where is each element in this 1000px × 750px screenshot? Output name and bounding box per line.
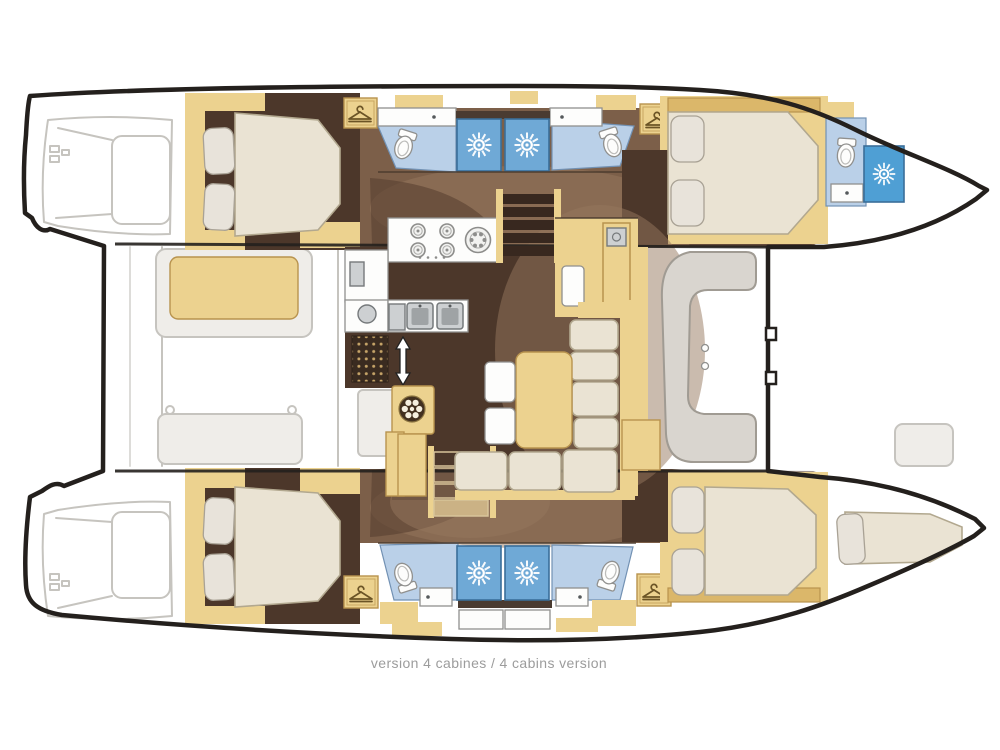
shower-stall	[505, 546, 549, 600]
sofa-cushion	[455, 452, 507, 490]
galley-sink-counter	[388, 300, 468, 332]
shower-stall	[457, 119, 501, 171]
pillow	[672, 487, 704, 533]
sofa-cushion	[509, 452, 561, 490]
floorplan-page: version 4 cabines / 4 cabins version	[0, 0, 1000, 750]
sofa-cushion	[563, 450, 617, 492]
double-bed	[705, 487, 816, 595]
round-burner-icon	[466, 228, 491, 253]
pillow	[671, 180, 704, 226]
crossbeam-cleat	[766, 328, 776, 340]
bow-locker-hatch	[895, 424, 953, 466]
floor-grate	[352, 336, 388, 382]
sofa-cushion	[572, 382, 618, 416]
saloon-table	[516, 352, 572, 448]
nav-sink-icon	[607, 228, 626, 246]
sink-counter	[550, 108, 602, 126]
bow-berth	[836, 512, 962, 565]
pillow	[203, 183, 235, 231]
cockpit-table	[158, 406, 302, 464]
shower-stall	[457, 546, 501, 600]
cabin-aft-port	[185, 93, 360, 250]
burner-icon	[440, 243, 454, 257]
sink-counter	[831, 184, 863, 202]
pouf	[485, 408, 515, 444]
pillow	[203, 497, 235, 545]
pouf	[485, 362, 515, 402]
wheel-icon	[399, 396, 425, 422]
sink-counter	[420, 588, 452, 606]
sofa-cushion	[570, 352, 618, 380]
hanging-locker	[344, 98, 377, 128]
sink-icon	[437, 303, 463, 329]
shower-stall	[505, 119, 549, 171]
galley-fridge-column	[345, 250, 388, 332]
hanging-locker	[344, 576, 378, 608]
caption: version 4 cabines / 4 cabins version	[371, 655, 607, 671]
cabin-aft-starboard	[185, 468, 378, 624]
pillow	[203, 127, 235, 175]
sink-counter	[556, 588, 588, 606]
sink-icon	[407, 303, 433, 329]
nav-seat	[562, 266, 584, 306]
sofa-cushion	[574, 418, 618, 448]
burner-icon	[411, 224, 425, 238]
pillow	[671, 116, 704, 162]
double-bed	[235, 113, 340, 236]
burner-icon	[411, 243, 425, 257]
cabinet	[505, 610, 550, 629]
corner-cabinet	[622, 420, 660, 470]
cockpit-bench-aft	[156, 249, 312, 337]
pillow	[672, 549, 704, 595]
stairs-top-hull	[496, 189, 561, 263]
sink-counter	[378, 108, 456, 126]
cabinet	[459, 610, 503, 629]
sofa-cushion	[570, 320, 618, 350]
crossbeam-cleat	[766, 372, 776, 384]
stove-counter	[388, 218, 500, 262]
pillow	[203, 553, 235, 601]
burner-icon	[440, 224, 454, 238]
shower-stall	[864, 146, 904, 202]
double-bed	[235, 487, 340, 607]
pillow	[836, 513, 865, 565]
catamaran-floorplan: version 4 cabines / 4 cabins version	[0, 0, 1000, 750]
